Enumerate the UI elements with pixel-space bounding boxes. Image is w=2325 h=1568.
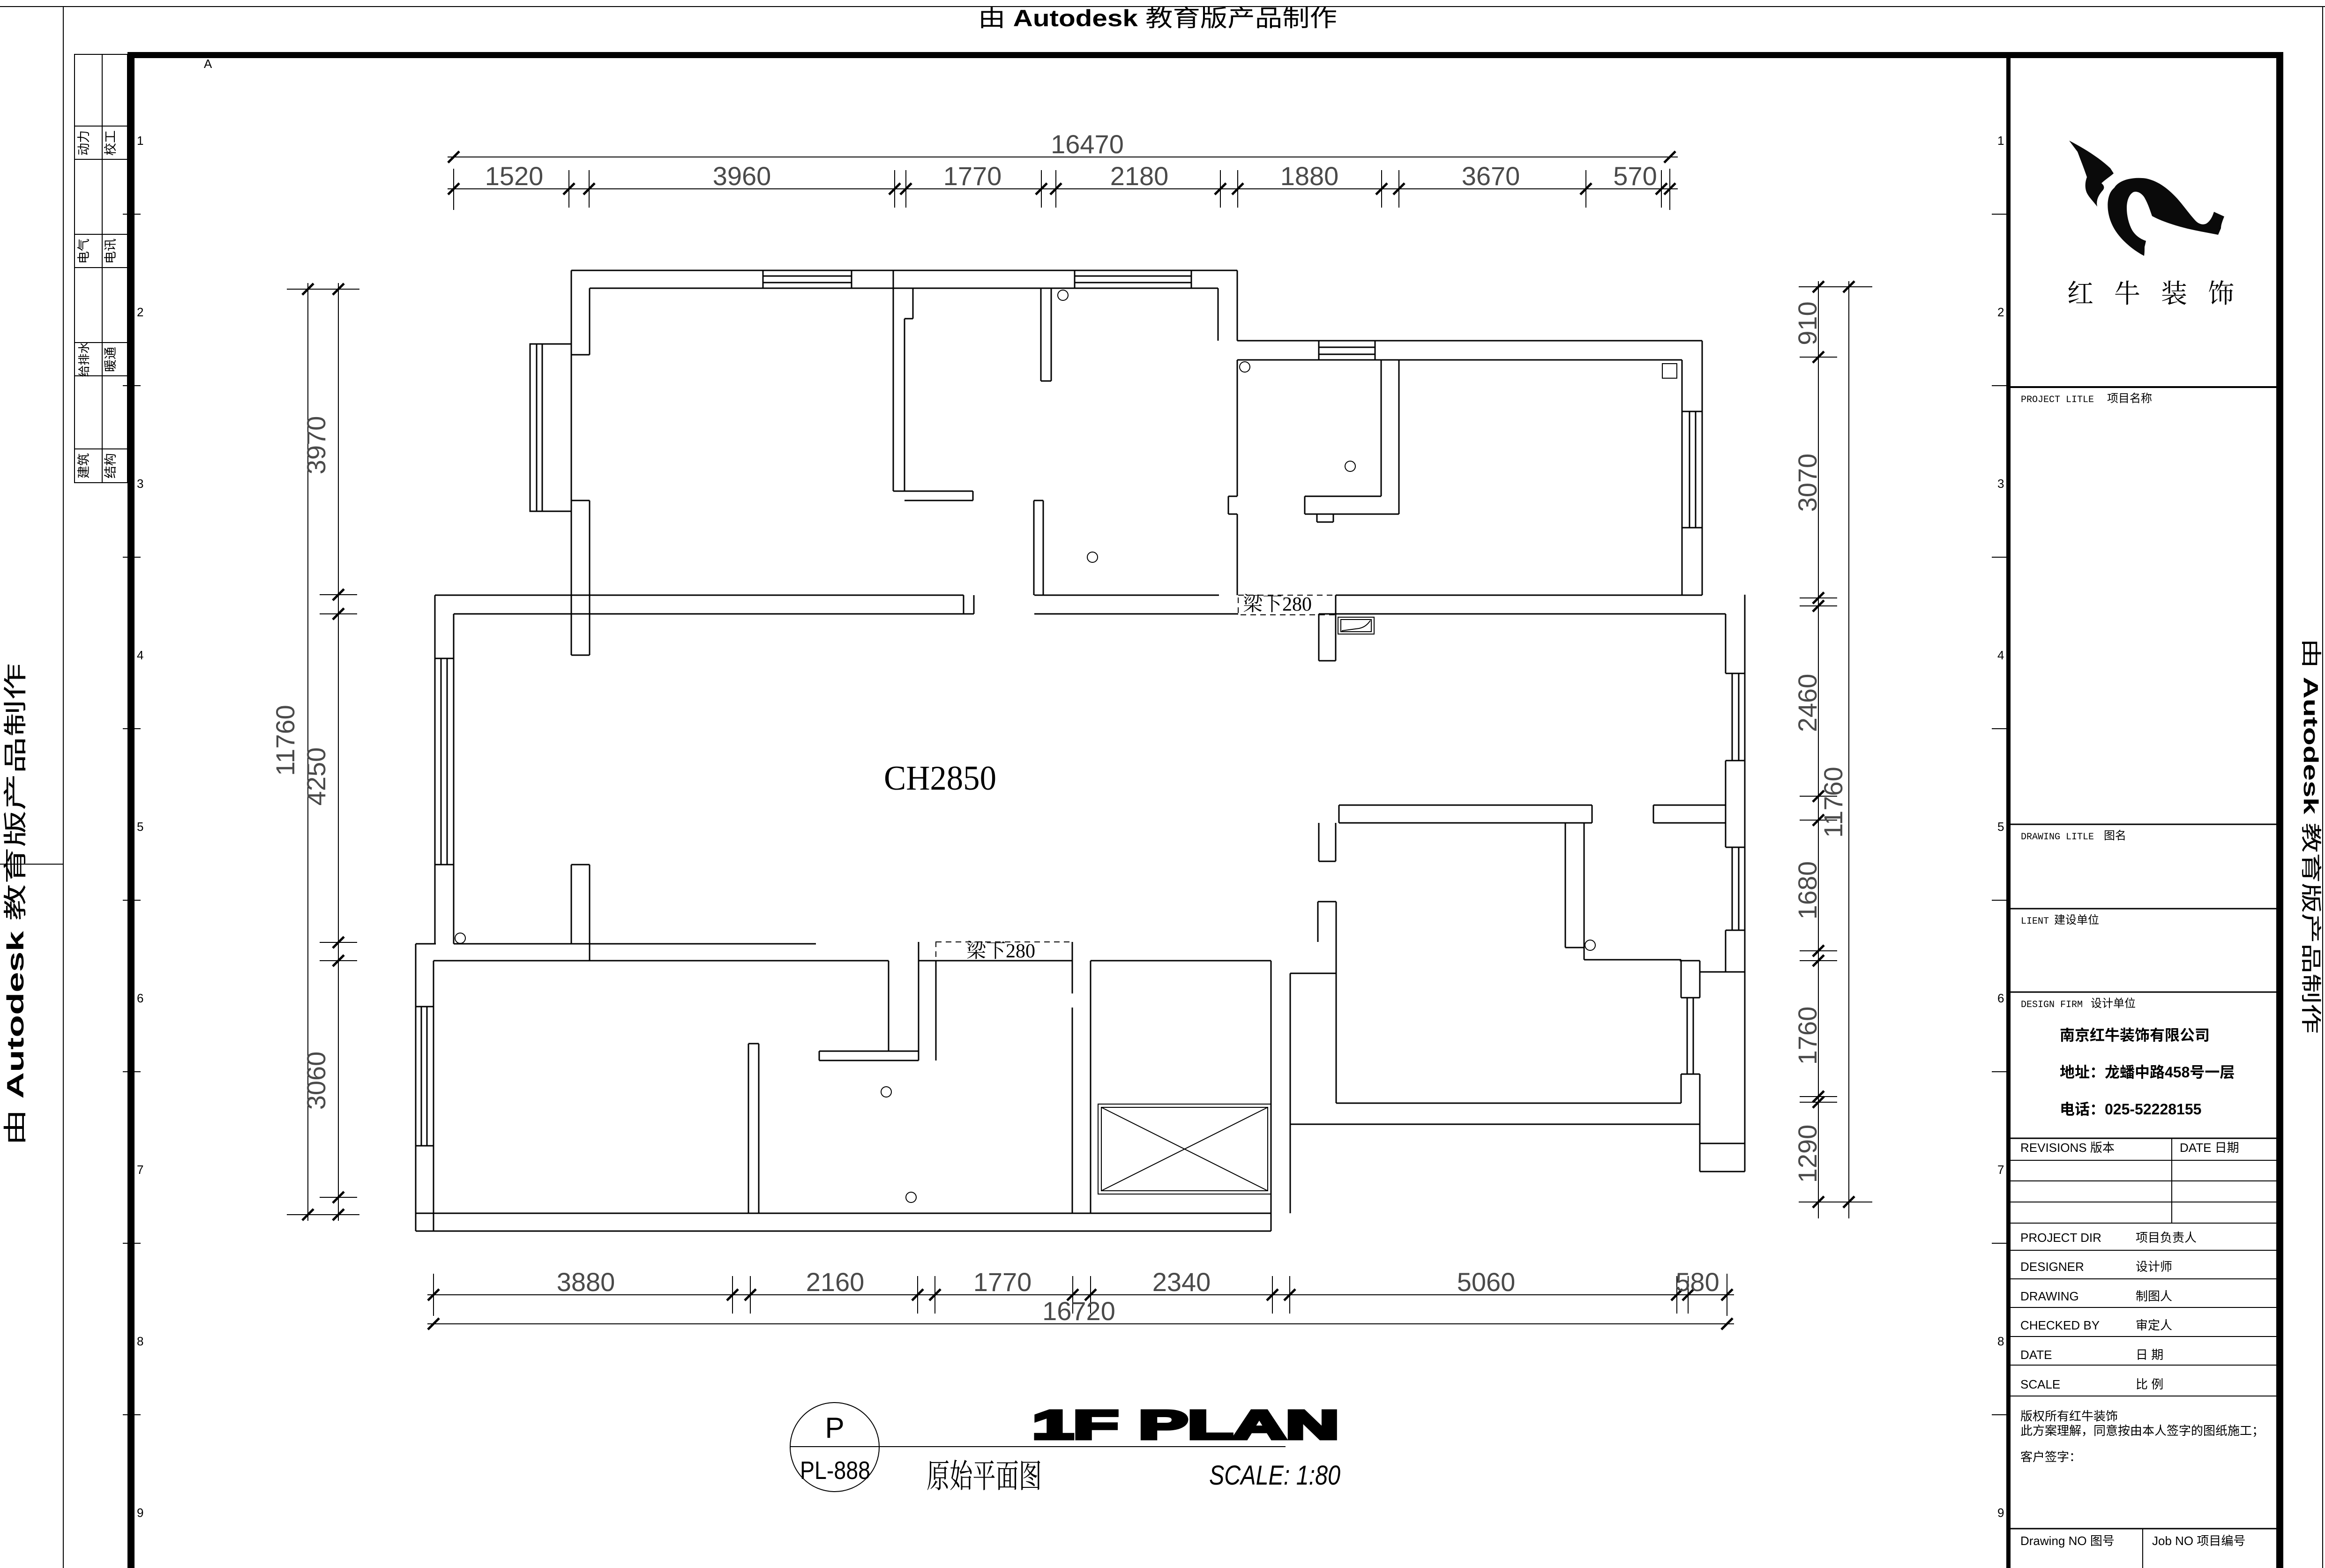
svg-text:6: 6 [137,991,143,1005]
svg-text:项目名称: 项目名称 [2107,392,2152,405]
svg-text:DATE: DATE [2020,1348,2052,1362]
svg-text:1F PLAN: 1F PLAN [1032,1403,1339,1448]
svg-text:5060: 5060 [1457,1267,1516,1297]
svg-text:电话：025-52228155: 电话：025-52228155 [2060,1101,2201,1118]
svg-text:SCALE: SCALE [2020,1377,2060,1391]
svg-text:Job NO 项目编号: Job NO 项目编号 [2152,1534,2245,1548]
svg-text:由 Autodesk 教育版产品制作: 由 Autodesk 教育版产品制作 [2,663,29,1146]
svg-text:7: 7 [137,1163,143,1177]
svg-text:建设单位: 建设单位 [2054,914,2099,926]
svg-text:审定人: 审定人 [2136,1318,2172,1332]
svg-text:1770: 1770 [973,1267,1032,1297]
svg-text:DESIGN FIRM: DESIGN FIRM [2021,1000,2083,1010]
svg-text:6: 6 [1997,991,2004,1005]
svg-text:1880: 1880 [1280,161,1339,191]
svg-text:REVISIONS 版本: REVISIONS 版本 [2020,1141,2115,1155]
svg-text:DRAWING: DRAWING [2020,1289,2079,1303]
svg-text:11760: 11760 [270,705,300,776]
svg-text:梁下280: 梁下280 [966,941,1035,962]
svg-text:动力: 动力 [77,130,91,156]
svg-text:9: 9 [137,1506,143,1520]
svg-text:比 例: 比 例 [2136,1377,2163,1391]
svg-text:给排水: 给排水 [78,342,91,377]
svg-text:梁下280: 梁下280 [1243,594,1312,615]
svg-text:建筑: 建筑 [77,453,91,478]
svg-text:7: 7 [1997,1163,2004,1177]
svg-text:910: 910 [1793,301,1822,345]
svg-text:1: 1 [137,134,143,148]
svg-text:设计单位: 设计单位 [2091,997,2136,1010]
svg-text:设计师: 设计师 [2136,1260,2172,1274]
svg-text:5: 5 [137,820,143,834]
svg-text:制图人: 制图人 [2136,1289,2172,1303]
svg-text:4250: 4250 [301,747,331,806]
svg-text:1: 1 [1997,134,2004,148]
svg-text:2340: 2340 [1152,1267,1211,1297]
svg-text:原始平面图: 原始平面图 [927,1459,1042,1495]
svg-text:8: 8 [137,1334,143,1348]
svg-text:由 Autodesk 教育版产品制作: 由 Autodesk 教育版产品制作 [2299,638,2322,1034]
svg-text:1760: 1760 [1793,1007,1822,1065]
svg-text:电讯: 电讯 [104,239,118,264]
svg-text:8: 8 [1997,1334,2004,1348]
svg-text:2160: 2160 [806,1267,865,1297]
svg-text:11760: 11760 [1818,767,1848,838]
svg-text:4: 4 [137,648,143,662]
svg-text:3: 3 [137,477,143,491]
svg-text:客户签字：: 客户签字： [2020,1450,2081,1464]
svg-text:580: 580 [1675,1267,1719,1297]
svg-text:校工: 校工 [104,130,118,156]
svg-text:9: 9 [1997,1506,2004,1520]
svg-text:4: 4 [1997,648,2004,662]
svg-text:PL-888: PL-888 [800,1456,870,1485]
svg-text:1290: 1290 [1793,1125,1822,1183]
svg-text:3060: 3060 [301,1052,331,1110]
svg-text:5: 5 [1997,820,2004,834]
svg-text:DRAWING LITLE: DRAWING LITLE [2021,832,2094,843]
svg-text:版权所有红牛装饰: 版权所有红牛装饰 [2020,1409,2118,1423]
svg-text:1770: 1770 [943,161,1002,191]
svg-text:3070: 3070 [1793,454,1822,512]
svg-text:1680: 1680 [1793,861,1822,920]
svg-text:PROJECT DIR: PROJECT DIR [2020,1231,2101,1245]
svg-text:A: A [204,57,212,71]
svg-text:DESIGNER: DESIGNER [2020,1260,2084,1274]
svg-text:570: 570 [1613,161,1657,191]
svg-text:PROJECT LITLE: PROJECT LITLE [2021,395,2094,405]
svg-text:CHECKED BY: CHECKED BY [2020,1318,2100,1332]
svg-text:16720: 16720 [1042,1296,1115,1326]
svg-text:1520: 1520 [485,161,544,191]
svg-text:2180: 2180 [1110,161,1169,191]
svg-text:2: 2 [137,305,143,319]
svg-text:Drawing NO 图号: Drawing NO 图号 [2020,1534,2115,1548]
svg-text:此方案理解，同意按由本人签字的图纸施工；: 此方案理解，同意按由本人签字的图纸施工； [2020,1424,2264,1438]
svg-text:3670: 3670 [1462,161,1520,191]
svg-text:红牛装饰: 红牛装饰 [2067,280,2255,309]
svg-text:图名: 图名 [2104,829,2126,842]
svg-text:由 Autodesk 教育版产品制作: 由 Autodesk 教育版产品制作 [978,5,1337,31]
svg-text:结构: 结构 [104,453,118,478]
svg-text:16470: 16470 [1051,129,1124,159]
svg-text:电气: 电气 [77,239,91,264]
svg-text:地址：龙蟠中路458号一层: 地址：龙蟠中路458号一层 [2060,1064,2235,1081]
svg-text:SCALE: 1:80: SCALE: 1:80 [1209,1460,1340,1491]
svg-text:3970: 3970 [301,416,331,475]
svg-text:3960: 3960 [713,161,771,191]
svg-text:2460: 2460 [1793,674,1822,732]
svg-text:暖通: 暖通 [104,347,118,372]
svg-text:LIENT: LIENT [2021,916,2049,927]
svg-text:CH2850: CH2850 [884,759,996,798]
svg-text:P: P [825,1412,844,1444]
svg-text:3880: 3880 [557,1267,615,1297]
svg-text:项目负责人: 项目负责人 [2136,1231,2197,1245]
svg-text:2: 2 [1997,305,2004,319]
svg-text:3: 3 [1997,477,2004,491]
svg-text:日 期: 日 期 [2136,1348,2163,1362]
svg-text:DATE 日期: DATE 日期 [2180,1141,2239,1155]
svg-text:南京红牛装饰有限公司: 南京红牛装饰有限公司 [2060,1027,2210,1044]
